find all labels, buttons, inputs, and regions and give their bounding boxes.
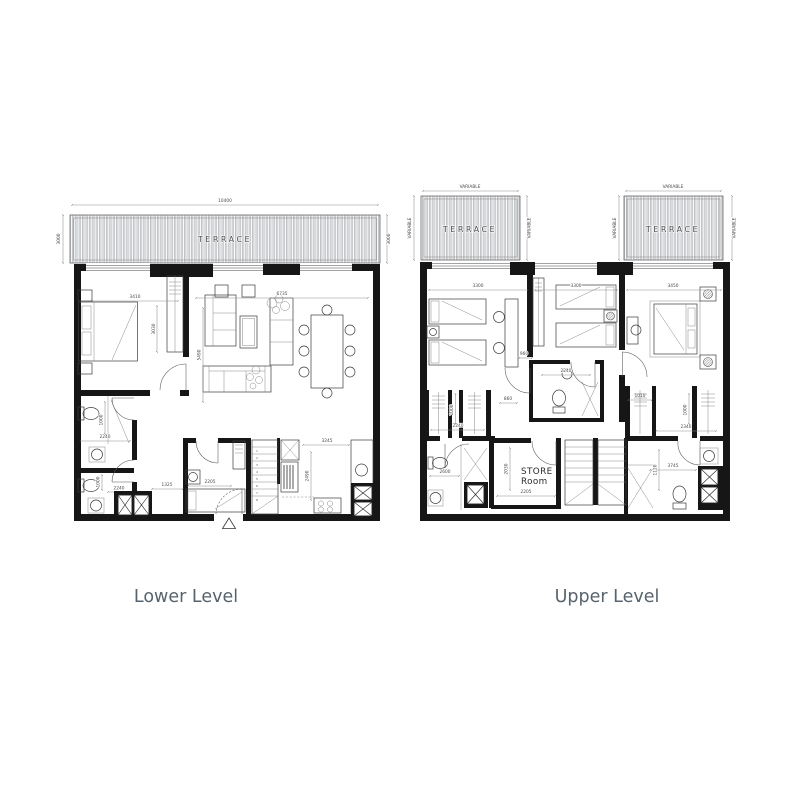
desk xyxy=(505,299,518,367)
store-room-label-2: Room xyxy=(521,477,548,487)
dim-bedroom1-width: 3300 xyxy=(473,283,484,289)
upper-bathroom-right: 3745 1120 xyxy=(628,441,723,510)
twin-bed xyxy=(429,340,486,365)
stair-step-number: 5 xyxy=(256,477,258,481)
sink xyxy=(704,451,715,462)
lamp xyxy=(430,329,437,336)
dining-table xyxy=(299,305,355,398)
upper-terrace-right: TERRACE VARIABLE VARIABLE VARIABLE xyxy=(612,184,738,260)
dim-terrace-right-depth-l: VARIABLE xyxy=(612,217,618,238)
lamp xyxy=(607,312,615,320)
dim-bedroom2-width: 3300 xyxy=(571,283,582,289)
stair-step-number: 3 xyxy=(256,463,258,467)
upper-terrace-left: TERRACE VARIABLE VARIABLE VARIABLE xyxy=(407,184,533,260)
dim-kitchen-width: 3245 xyxy=(322,438,333,444)
double-bed xyxy=(79,302,138,361)
dim-terrace-right-width: VARIABLE xyxy=(663,184,684,190)
dim-terrace-left-depth-r: VARIABLE xyxy=(527,217,533,238)
lower-elevator-shafts xyxy=(114,491,152,518)
toilet-bowl xyxy=(673,486,686,502)
toilet-bowl xyxy=(83,408,99,420)
kitchen-sink xyxy=(356,464,368,476)
stair-step-number: 6 xyxy=(256,484,258,488)
lamp xyxy=(704,358,713,367)
dim-bedroom2-recess: 960 xyxy=(520,351,528,357)
dim-bathroom-mid-width: 2240 xyxy=(561,368,572,374)
dim-living-width: 6735 xyxy=(277,291,288,297)
sofa-chaise xyxy=(205,295,236,346)
chair xyxy=(494,343,505,354)
upper-terrace-right-label: TERRACE xyxy=(645,225,700,234)
dim-closets-left-width: 2240 xyxy=(453,423,464,429)
sink xyxy=(430,493,441,504)
chair xyxy=(494,312,505,323)
upper-bedroom-2: 3300 960 xyxy=(519,278,617,358)
dim-bathroom-right-depth: 1120 xyxy=(653,464,659,475)
dim-bedroom-width: 3410 xyxy=(130,294,141,300)
dim-terrace-left-depth-l: VARIABLE xyxy=(407,217,413,238)
kitchen-shafts xyxy=(351,483,375,516)
dim-bathroom1-width: 2240 xyxy=(100,434,111,440)
closet xyxy=(432,392,445,434)
lower-living-room: 6735 5490 xyxy=(196,285,368,402)
desk xyxy=(627,317,638,344)
wardrobe xyxy=(533,278,544,346)
dim-lower-terrace-depth-right: 3000 xyxy=(386,233,392,244)
lower-level-title: Lower Level xyxy=(134,587,238,607)
coffee-table xyxy=(240,316,257,348)
lower-kitchen: 3245 2490 xyxy=(281,438,375,516)
dim-lower-terrace-depth-left: 3000 xyxy=(56,233,62,244)
lower-terrace-label: TERRACE xyxy=(197,235,252,244)
wardrobe xyxy=(167,276,183,352)
store-room-label-1: STORE xyxy=(521,467,553,477)
upper-level-title: Upper Level xyxy=(555,587,660,607)
lamp xyxy=(704,290,713,299)
wardrobe xyxy=(233,441,245,469)
upper-level-plan: TERRACE VARIABLE VARIABLE VARIABLE TERRA… xyxy=(407,184,738,607)
lower-stairs: 1 2 3 4 5 6 7 8 xyxy=(252,440,278,514)
tv-console xyxy=(270,298,293,365)
dim-entry-width: 1325 xyxy=(162,482,173,488)
twin-bed xyxy=(556,285,616,309)
dim-terrace-right-depth-r: VARIABLE xyxy=(732,217,738,238)
shaft xyxy=(464,482,488,508)
stair-step-number: 7 xyxy=(256,491,258,495)
stair-step-number: 1 xyxy=(256,449,258,453)
dim-maid-room-width: 2205 xyxy=(205,479,216,485)
upper-closets-left: 2240 1000 xyxy=(431,392,484,434)
upper-bedroom-3: 3450 1010 xyxy=(622,283,721,400)
dim-hall-width: 860 xyxy=(504,396,512,402)
washing-machine xyxy=(186,470,200,484)
dim-bathroom2-depth: 1000 xyxy=(96,476,102,487)
twin-bed xyxy=(556,323,616,347)
toilet-bowl xyxy=(553,390,566,406)
closet xyxy=(468,392,481,434)
dim-closets-right-width: 2340 xyxy=(681,424,692,430)
lower-terrace: TERRACE 10400 3000 3000 xyxy=(56,198,392,263)
closet xyxy=(701,390,715,434)
upper-bathroom-left: 2600 xyxy=(428,444,488,510)
twin-bed xyxy=(429,299,486,324)
lower-level-plan: TERRACE 10400 3000 3000 xyxy=(56,198,392,607)
lower-bathroom-1: 2240 1000 xyxy=(78,396,134,462)
dim-lower-terrace-width: 10400 xyxy=(218,198,232,204)
floorplan-canvas: TERRACE 10400 3000 3000 xyxy=(0,0,800,800)
double-bed xyxy=(650,301,700,357)
sink xyxy=(91,500,102,511)
toilet xyxy=(553,407,565,413)
upper-bathroom-mid: 2240 xyxy=(542,362,598,416)
dim-store-depth: 2030 xyxy=(504,463,510,474)
dim-bedroom-depth: 3030 xyxy=(151,323,157,334)
upper-bedroom-1: 3300 860 xyxy=(427,283,530,403)
stair-step-number: 2 xyxy=(256,456,258,460)
appliance-unit xyxy=(281,462,298,492)
toilet xyxy=(673,503,686,509)
dim-bathroom1-depth: 1000 xyxy=(99,414,105,425)
dim-living-depth: 5490 xyxy=(197,349,203,360)
nightstand xyxy=(427,326,439,338)
dim-bathroom-right-width: 3745 xyxy=(668,463,679,469)
upper-store-room: STORE Room 2205 2030 xyxy=(497,441,556,496)
upper-closets-right: 2340 1000 xyxy=(634,390,716,434)
dim-closet-right-depth: 1000 xyxy=(683,404,689,415)
sofa xyxy=(203,366,271,392)
upper-terrace-left-label: TERRACE xyxy=(442,225,497,234)
plant xyxy=(247,366,263,389)
lower-maid-room: 2205 xyxy=(186,441,245,512)
floorplan-sheet: TERRACE 10400 3000 3000 xyxy=(0,0,800,800)
dim-terrace-left-width: VARIABLE xyxy=(460,184,481,190)
chair xyxy=(631,325,641,335)
dim-bathroom-left-width: 2600 xyxy=(440,469,451,475)
sink xyxy=(92,449,103,460)
lower-bedroom: 3410 3030 xyxy=(78,276,186,390)
shafts xyxy=(698,466,723,510)
dim-bedroom3-width: 3450 xyxy=(668,283,679,289)
door-arc xyxy=(160,364,186,390)
stair-step-number: 8 xyxy=(256,498,258,502)
single-bed xyxy=(186,489,245,512)
dim-store-width: 2205 xyxy=(521,489,532,495)
stair-step-number: 4 xyxy=(256,470,258,474)
dim-closet-left-depth: 1000 xyxy=(449,404,455,415)
dim-bathroom2-width: 2240 xyxy=(114,486,125,492)
dim-kitchen-depth: 2490 xyxy=(305,470,311,481)
